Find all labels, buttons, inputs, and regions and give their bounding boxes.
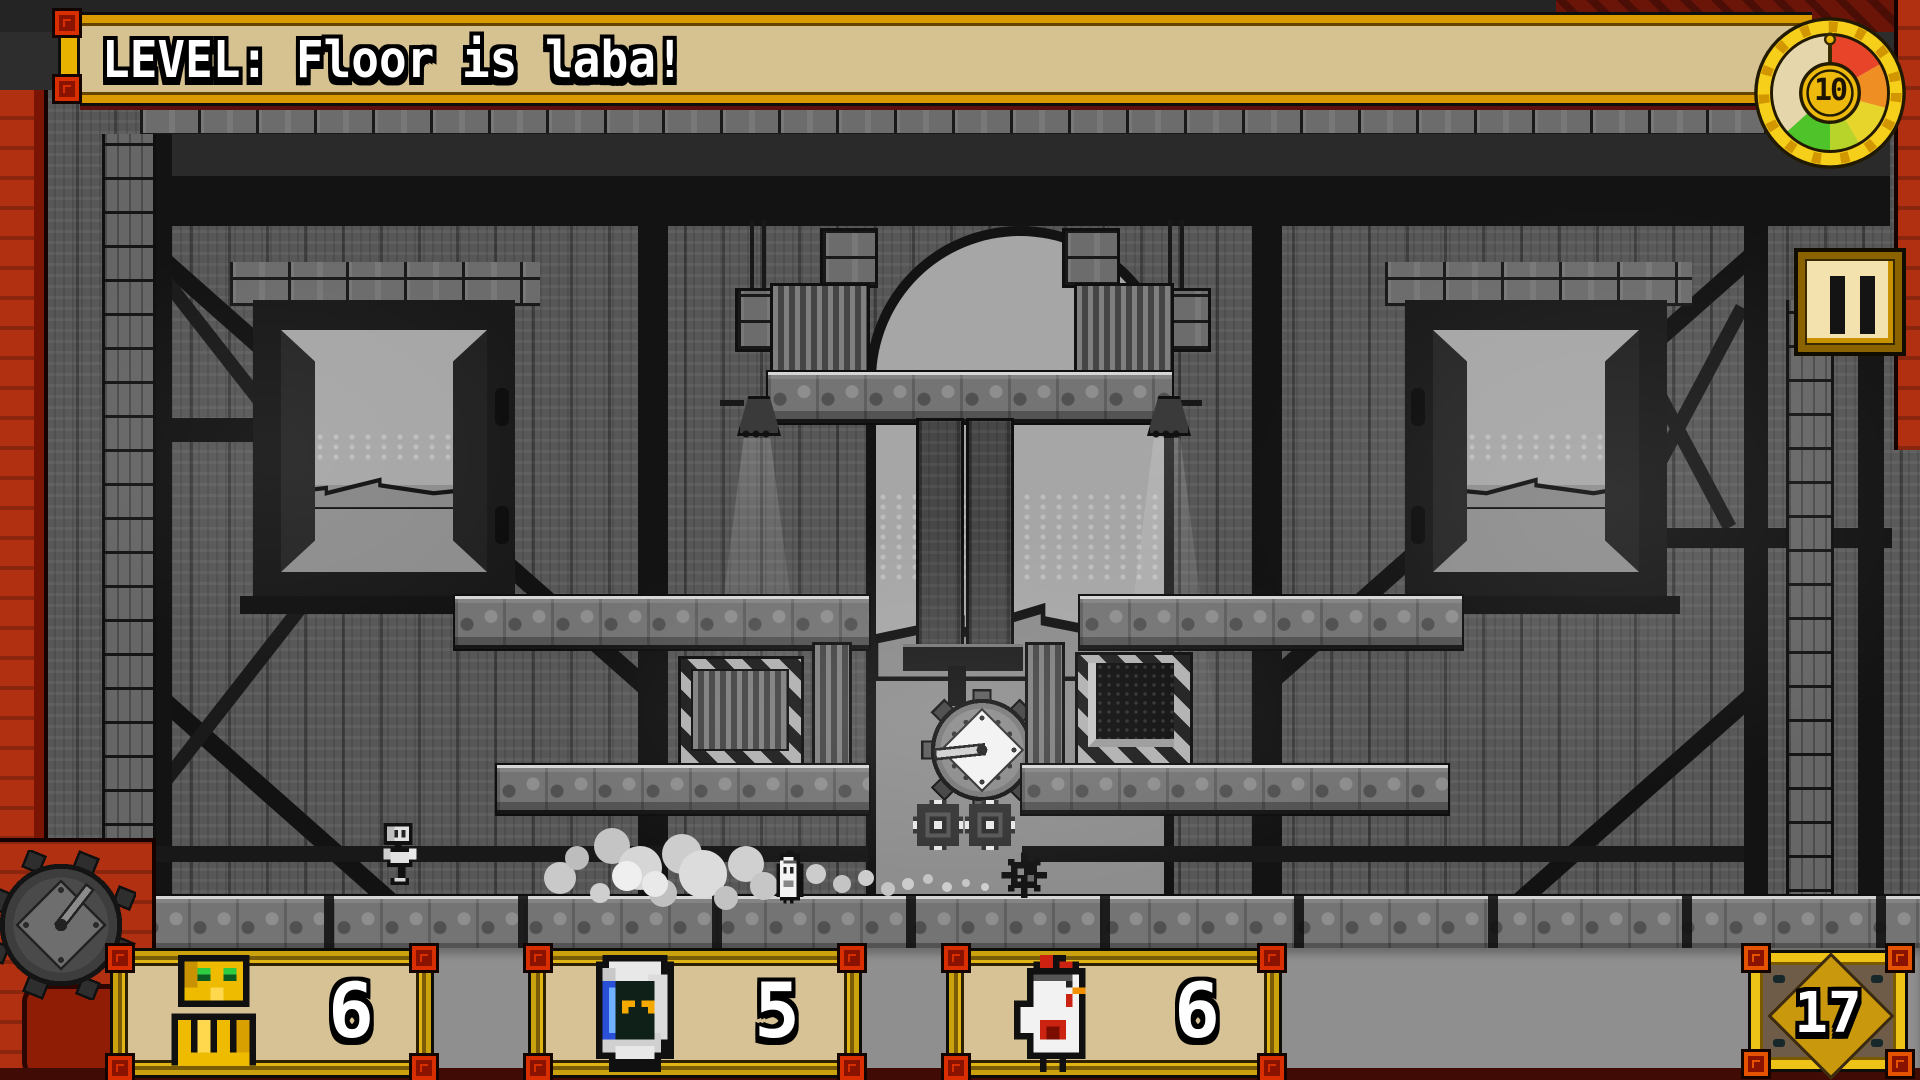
hanging-pillar <box>966 418 1014 656</box>
window-hinge <box>495 506 509 544</box>
timer-value: 10 <box>1752 73 1908 108</box>
spider-creature <box>998 848 1050 902</box>
striped-cage <box>678 656 804 766</box>
ceiling-beam <box>140 176 1890 226</box>
right-window <box>1405 300 1667 600</box>
score-value: 17 <box>1751 981 1905 1047</box>
left-lower-platform <box>497 765 869 814</box>
base-beam <box>1022 846 1744 862</box>
lamp-bracket <box>720 400 744 406</box>
lamp-drops <box>1151 430 1181 438</box>
left-window <box>253 300 515 600</box>
right-mid-beam <box>1650 528 1892 548</box>
stat-panel-robot: 5 <box>528 948 862 1078</box>
idol-count: 6 <box>291 965 411 1057</box>
robot-count: 5 <box>717 965 837 1057</box>
pause-button[interactable] <box>1794 248 1906 356</box>
chick-character <box>770 850 810 904</box>
right-upper-beam <box>1080 596 1462 649</box>
stone-block <box>1062 228 1120 288</box>
hanging-rope <box>1180 220 1184 294</box>
slat-column <box>1025 642 1065 774</box>
floor-joints <box>140 896 1920 948</box>
window-hinge <box>1411 506 1425 544</box>
chicken-count: 6 <box>1137 965 1257 1057</box>
game-screen: LEVEL: Floor is laba! 10 <box>0 0 1920 1080</box>
hanging-pillar <box>916 418 964 656</box>
central-platform <box>768 372 1172 423</box>
right-lower-platform <box>1022 765 1448 814</box>
stat-panel-chicken: 6 <box>946 948 1282 1078</box>
chicken-icon <box>1001 955 1105 1072</box>
open-crate <box>1075 652 1193 766</box>
robot-character <box>376 806 420 902</box>
window-hinge <box>495 388 509 426</box>
banner-corner-ornament <box>52 8 82 38</box>
pixel-flower-icon <box>965 800 1015 850</box>
level-banner: LEVEL: Floor is laba! <box>80 12 1812 106</box>
slat-pillar <box>770 283 870 381</box>
ceiling-shadow <box>140 134 1890 178</box>
left-upper-beam <box>455 596 869 649</box>
slat-column <box>812 642 852 774</box>
level-banner-label: LEVEL: Floor is laba! <box>102 31 684 88</box>
stone-block <box>820 228 878 288</box>
golden-idol-icon <box>165 955 269 1072</box>
slat-pillar <box>1074 283 1174 381</box>
lamp-drops <box>741 430 771 438</box>
banner-corner-ornament <box>52 74 82 104</box>
base-beam <box>150 846 868 862</box>
window-hinge <box>1411 388 1425 426</box>
hanging-rope <box>762 220 766 294</box>
hanging-rope <box>750 220 754 294</box>
game-canvas[interactable] <box>0 0 1920 1080</box>
timer-dial: 10 <box>1752 15 1908 171</box>
score-panel: 17 <box>1748 950 1908 1072</box>
vertical-beam <box>1744 176 1768 910</box>
stat-panel-idol: 6 <box>110 948 434 1078</box>
hooded-robot-icon <box>583 955 687 1072</box>
pixel-flower-icon <box>913 800 963 850</box>
